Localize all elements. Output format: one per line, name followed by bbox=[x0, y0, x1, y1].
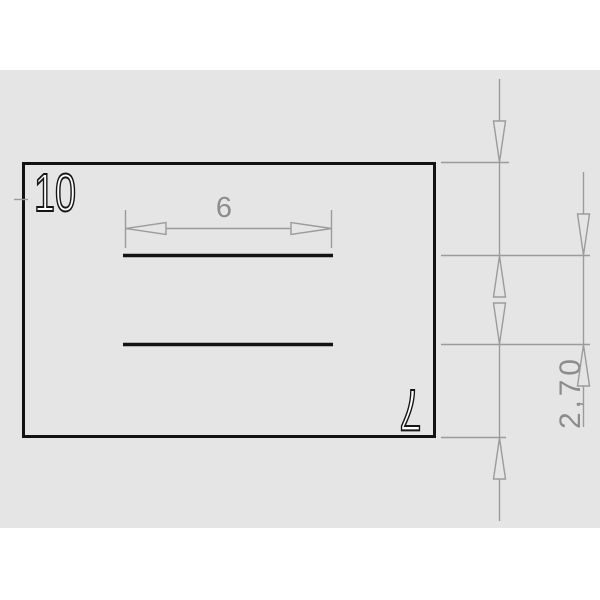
part-height-label: 7 bbox=[400, 377, 422, 442]
cad-drawing-canvas: 6 2,70 2,70 2,60 bbox=[0, 0, 600, 600]
part-width-label: 10 bbox=[34, 163, 76, 223]
dim-bottom-value: 2,70 bbox=[554, 359, 587, 429]
technical-drawing: 6 2,70 2,70 2,60 bbox=[0, 0, 600, 600]
sheet-background bbox=[0, 70, 600, 528]
dim6-value: 6 bbox=[216, 192, 232, 224]
